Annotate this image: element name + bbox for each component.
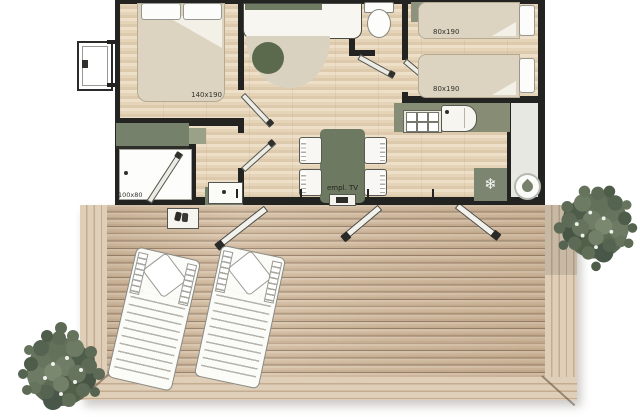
sink-faucet — [445, 110, 449, 114]
hinge-tick — [300, 189, 302, 198]
tree-foliage — [8, 320, 114, 417]
dining-chair — [299, 137, 322, 164]
shower-size-label: 100x80 — [118, 191, 143, 199]
hinge-tick — [367, 189, 369, 198]
burner — [417, 112, 428, 122]
burner — [428, 112, 439, 122]
wardrobe — [116, 123, 189, 149]
hinge-mark — [148, 118, 153, 123]
burner — [428, 122, 439, 132]
hinge-tick — [432, 189, 434, 198]
lounger-slats — [200, 288, 272, 383]
sink-divider — [464, 108, 465, 128]
tv-spot-label: empl. TV — [320, 184, 365, 192]
hinge-tick — [236, 189, 238, 198]
tv — [336, 197, 348, 203]
water-drop-icon — [520, 179, 536, 195]
sofa-back — [245, 4, 322, 10]
floorplan-canvas: 140x190 100x80 80x190 80x190 ❄ — [0, 0, 640, 417]
double-bed-size-label: 140x190 — [178, 91, 222, 99]
toilet-bowl — [367, 9, 391, 38]
wall-bedroom1 — [238, 125, 244, 133]
pillow — [183, 3, 222, 20]
shoes — [182, 213, 189, 222]
tree — [548, 176, 640, 276]
dining-chair — [364, 137, 387, 164]
wall-twin-room — [402, 0, 408, 60]
burner — [417, 122, 428, 132]
lounger-pillow — [142, 252, 187, 298]
burner — [406, 112, 417, 122]
water-heater — [514, 173, 541, 200]
dining-chair — [299, 169, 322, 196]
tree — [8, 320, 114, 417]
pillow — [519, 5, 535, 36]
pillow — [519, 58, 535, 93]
pouf — [252, 42, 284, 74]
pillow — [141, 3, 181, 20]
basin-faucet — [222, 190, 226, 194]
tree-foliage — [548, 176, 640, 276]
twin-bed-size-label: 80x190 — [433, 28, 459, 36]
window-jamb — [107, 40, 120, 44]
burner — [406, 122, 417, 132]
snowflake-icon: ❄ — [484, 177, 497, 192]
shower-drain — [124, 171, 128, 175]
shelf — [189, 128, 206, 144]
window-handle — [82, 60, 88, 68]
fridge: ❄ — [474, 168, 507, 201]
twin-bed-size-label: 80x190 — [433, 85, 459, 93]
lounger-pillow — [227, 250, 272, 296]
stove — [403, 110, 442, 133]
lounger-slats — [113, 289, 187, 384]
hinge-mark — [162, 118, 167, 123]
window-jamb — [107, 83, 120, 87]
